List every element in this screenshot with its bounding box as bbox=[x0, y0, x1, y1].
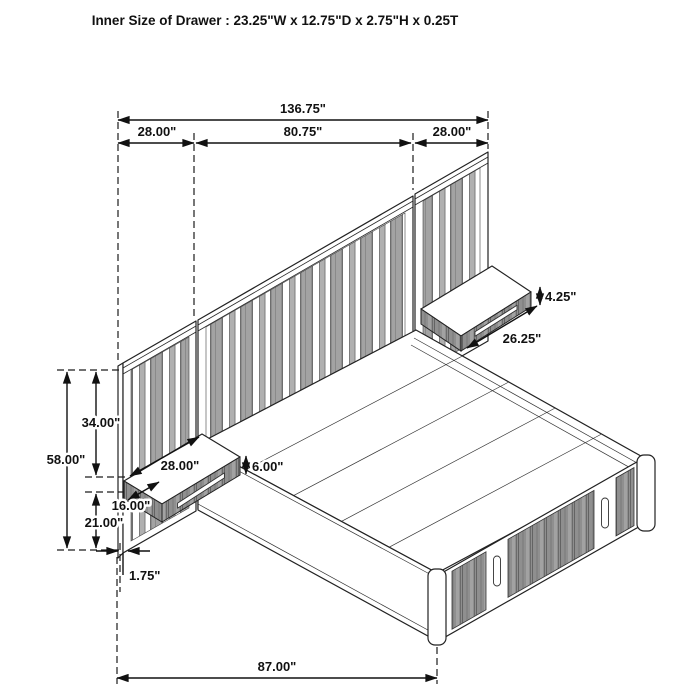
footboard-drawer-front bbox=[616, 468, 634, 536]
drawing-title: Inner Size of Drawer : 23.25"W x 12.75"D… bbox=[92, 13, 459, 28]
bed-dimension-diagram: Inner Size of Drawer : 23.25"W x 12.75"D… bbox=[0, 0, 700, 700]
label-right-shelf-height: 4.25" bbox=[545, 289, 576, 304]
label-base-height: 21.00" bbox=[85, 515, 124, 530]
drawer-handle-pill bbox=[494, 556, 501, 586]
label-upper-height: 34.00" bbox=[82, 415, 121, 430]
label-left-shelf-height: 6.00" bbox=[252, 459, 283, 474]
label-panel-thickness: 1.75" bbox=[129, 568, 160, 583]
label-bed-length: 87.00" bbox=[258, 659, 297, 674]
label-left-panel-width: 28.00" bbox=[138, 124, 177, 139]
label-total-width: 136.75" bbox=[280, 101, 326, 116]
label-left-shelf-depth: 16.00" bbox=[112, 498, 151, 513]
corner-post-right bbox=[637, 455, 655, 531]
label-left-shelf-width: 28.00" bbox=[161, 458, 200, 473]
drawer-handle-pill bbox=[602, 498, 609, 528]
label-right-shelf-width: 26.25" bbox=[503, 331, 542, 346]
diagram-canvas: Inner Size of Drawer : 23.25"W x 12.75"D… bbox=[0, 0, 700, 700]
label-right-panel-width: 28.00" bbox=[433, 124, 472, 139]
corner-post-near bbox=[428, 569, 446, 645]
label-total-height: 58.00" bbox=[47, 452, 86, 467]
label-center-panel-width: 80.75" bbox=[284, 124, 323, 139]
